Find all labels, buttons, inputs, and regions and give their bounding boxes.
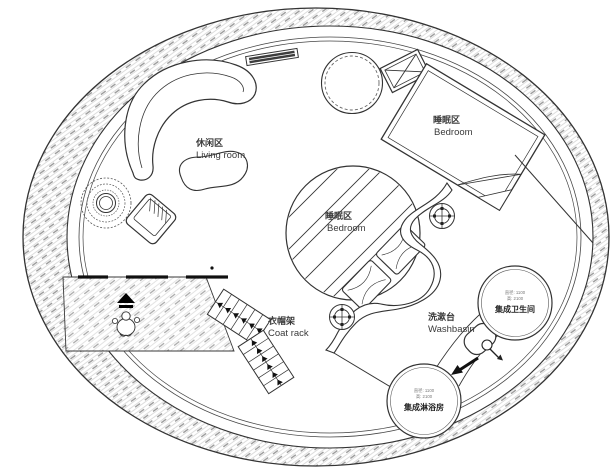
living-room-label-en: Living room [196, 150, 245, 161]
coat-rack-label-zh: 衣帽架 [268, 315, 295, 326]
bedroom-loft-label-en: Bedroom [327, 223, 366, 234]
bathroom-pod-label: 集成卫生间 [494, 304, 535, 314]
washbasin-label-en: Washbasin [428, 324, 475, 335]
shower-pod-spec1: 直径: 1100 [414, 387, 435, 393]
flow-arrow [451, 358, 478, 375]
bathroom-pod-spec2: 高: 2100 [507, 295, 524, 302]
wall-shelf [246, 48, 299, 65]
shower-pod: 直径: 1100 高: 2100 集成淋浴房 [387, 364, 461, 438]
bathroom-pod: 直径: 1100 高: 2100 集成卫生间 [478, 266, 552, 340]
shower-pod-label: 集成淋浴房 [403, 402, 444, 412]
bedroom-loft-label-zh: 睡眠区 [325, 210, 352, 221]
point-marker [210, 266, 213, 269]
door-track-bar [126, 275, 168, 278]
round-rug [322, 53, 383, 114]
floor-plan: 直径: 1100 高: 2100 集成卫生间 直径: 1100 高: 2100 … [0, 0, 611, 473]
target-marker-icon [330, 305, 355, 330]
washbasin-label-zh: 洗漱台 [428, 311, 455, 322]
shower-pod-spec2: 高: 2100 [416, 393, 433, 400]
bathroom-pod-spec1: 直径: 1100 [505, 289, 526, 295]
living-room-label-zh: 休闲区 [195, 137, 223, 148]
partition-line-bathroom [329, 350, 394, 389]
bedroom-main-label-en: Bedroom [434, 127, 473, 138]
target-marker-icon [430, 204, 455, 229]
door-track-bar [186, 275, 228, 278]
coat-rack-label-en: Coat rack [268, 328, 309, 339]
plant [81, 178, 131, 228]
door-track-bar [78, 275, 108, 278]
bedroom-main-label-zh: 睡眠区 [433, 114, 460, 125]
armchair [124, 192, 178, 246]
